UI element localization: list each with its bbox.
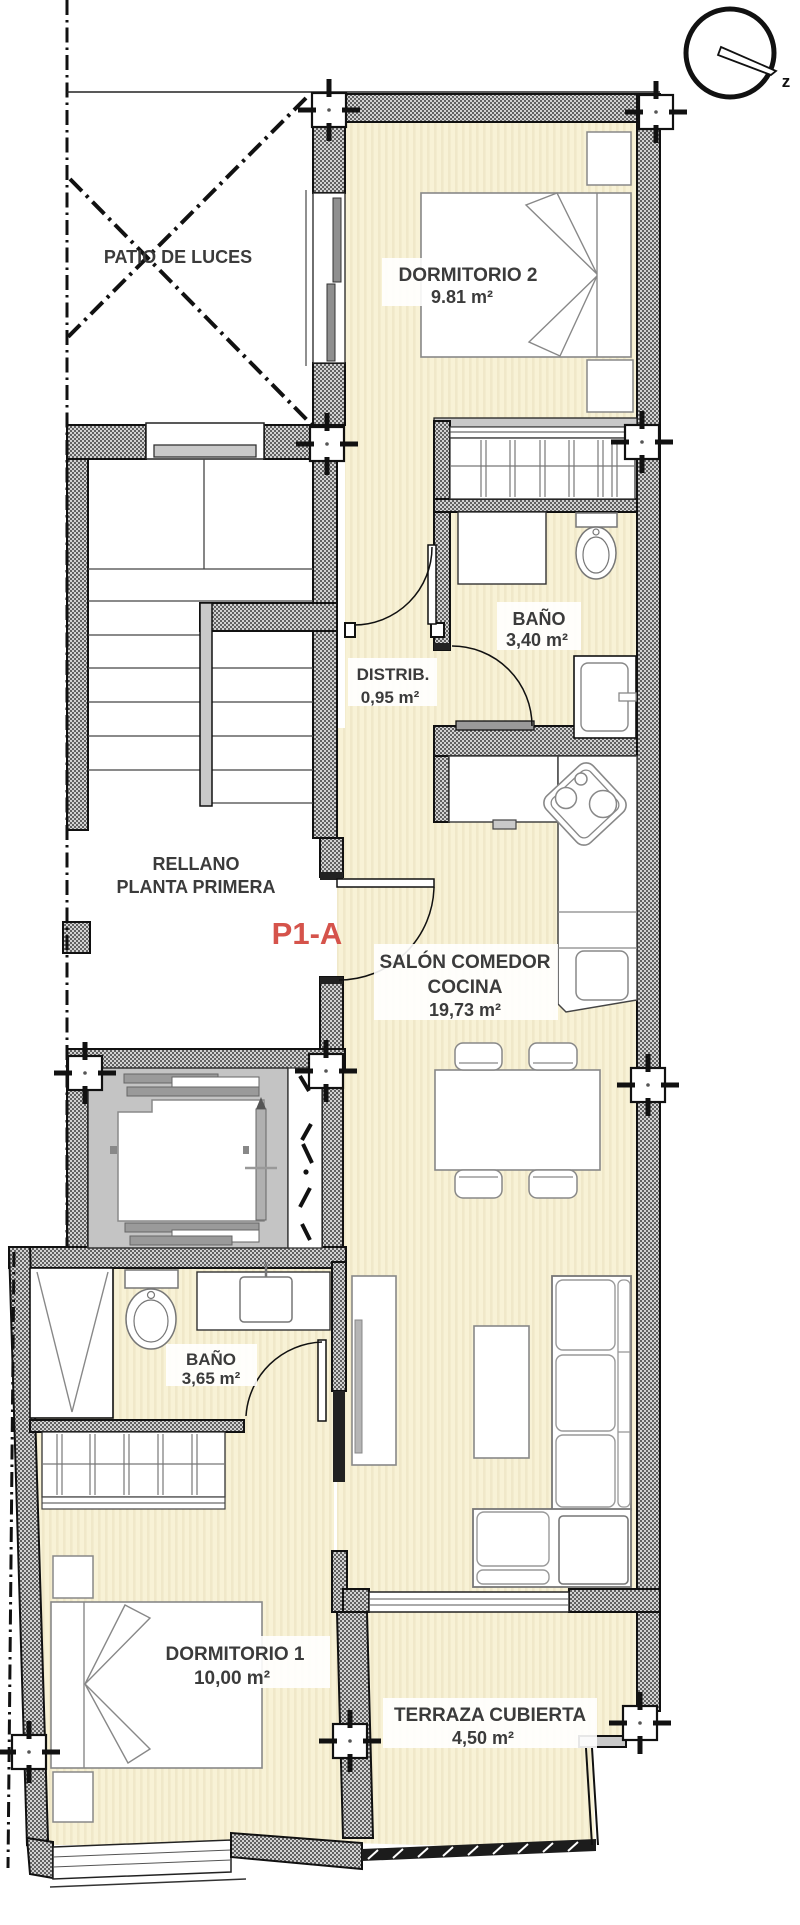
svg-text:DORMITORIO 1: DORMITORIO 1 (166, 1644, 305, 1665)
svg-text:10,00 m²: 10,00 m² (194, 1668, 270, 1689)
svg-text:DORMITORIO 2: DORMITORIO 2 (399, 265, 538, 286)
svg-text:3,40 m²: 3,40 m² (506, 630, 568, 650)
svg-text:19,73 m²: 19,73 m² (429, 1000, 501, 1020)
svg-text:BAÑO: BAÑO (513, 608, 566, 629)
svg-text:PLANTA PRIMERA: PLANTA PRIMERA (117, 877, 276, 897)
svg-text:9.81 m²: 9.81 m² (431, 287, 493, 307)
svg-text:z: z (782, 72, 791, 91)
svg-text:4,50 m²: 4,50 m² (452, 1728, 514, 1748)
svg-text:BAÑO: BAÑO (186, 1349, 236, 1369)
svg-text:P1-A: P1-A (272, 916, 343, 951)
svg-text:RELLANO: RELLANO (153, 854, 240, 874)
svg-text:3,65 m²: 3,65 m² (182, 1369, 241, 1388)
svg-text:TERRAZA CUBIERTA: TERRAZA CUBIERTA (394, 1705, 586, 1726)
svg-text:DISTRIB.: DISTRIB. (357, 665, 430, 684)
svg-text:0,95 m²: 0,95 m² (361, 688, 420, 707)
svg-text:PATIO DE LUCES: PATIO DE LUCES (104, 247, 252, 267)
svg-text:SALÓN COMEDOR: SALÓN COMEDOR (380, 951, 551, 973)
svg-text:COCINA: COCINA (428, 977, 503, 998)
